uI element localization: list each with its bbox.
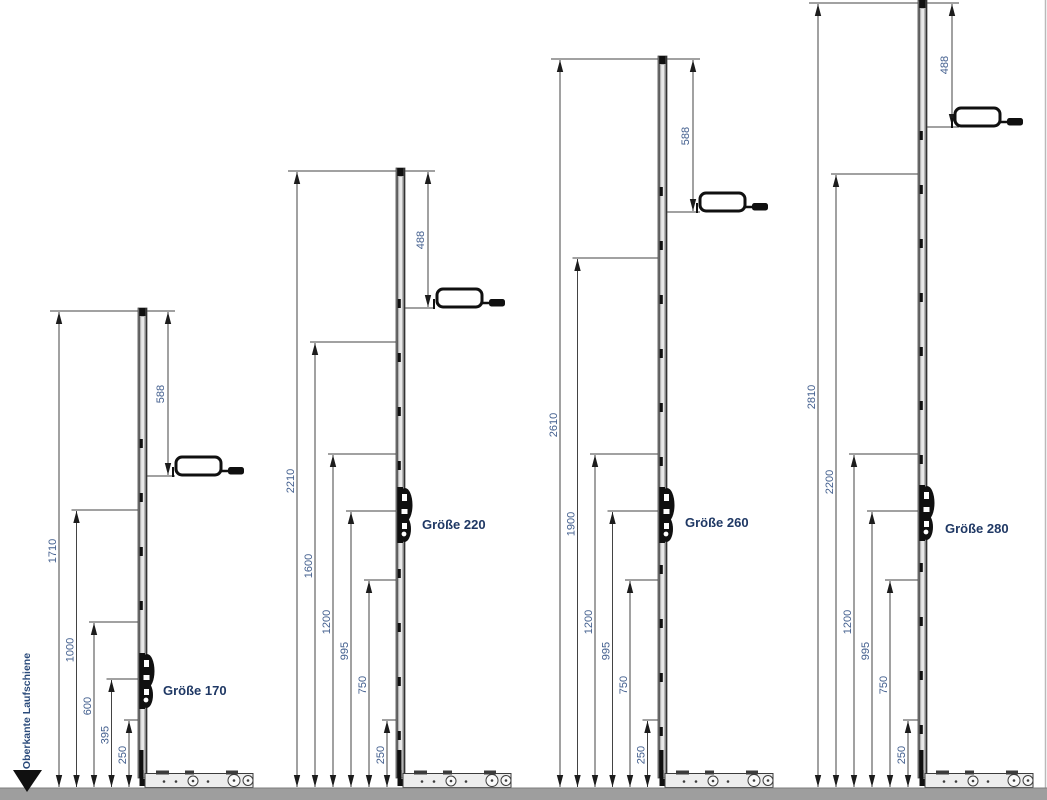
dimension-value: 250 <box>896 746 908 764</box>
dimension-value: 750 <box>878 676 890 694</box>
locking-point <box>398 677 401 686</box>
dimension-arrow <box>833 775 839 787</box>
carriage-axle-dot <box>767 779 770 782</box>
dimension-arrow <box>574 259 580 271</box>
lock-detail <box>924 507 930 512</box>
unit-3: 261019001200995750250588Größe 260 <box>548 56 773 788</box>
unit-label: Größe 280 <box>945 521 1009 536</box>
dimension-arrow <box>644 775 650 787</box>
locking-point <box>140 547 143 556</box>
dimension-arrow <box>165 463 171 475</box>
dimension-arrow <box>294 775 300 787</box>
locking-point <box>660 619 663 628</box>
locking-point <box>920 455 923 464</box>
dimension-value: 250 <box>636 746 648 764</box>
dimension-arrow <box>609 512 615 524</box>
dimension-value: 250 <box>375 746 387 764</box>
lock-detail <box>144 689 149 695</box>
door-handle <box>176 457 221 475</box>
dimension-arrow <box>91 775 97 787</box>
carriage-axle-dot <box>491 779 494 782</box>
dimension-arrow <box>348 512 354 524</box>
lock-detail <box>924 492 929 499</box>
carriage-axle-dot <box>465 780 468 783</box>
locking-point <box>398 569 401 578</box>
dimension-arrow <box>73 511 79 523</box>
door-handle <box>955 108 1000 126</box>
dimension-value: 395 <box>100 726 112 744</box>
carriage-detail <box>1006 771 1018 775</box>
carriage-axle-dot <box>233 779 236 782</box>
locking-point <box>920 563 923 572</box>
carriage-axle-dot <box>421 780 424 783</box>
dimension-arrow <box>851 455 857 467</box>
carriage-detail <box>443 771 452 775</box>
dimension-value: 1200 <box>842 610 854 634</box>
dimension-arrow <box>425 295 431 307</box>
dimension-arrow <box>312 343 318 355</box>
locking-point <box>398 623 401 632</box>
dimension-arrow <box>627 775 633 787</box>
carriage-axle-dot <box>247 779 250 782</box>
dimension-value: 588 <box>680 127 692 145</box>
dimension-value: 1200 <box>321 610 333 634</box>
rail-top-cap <box>398 168 404 176</box>
dimension-value: 2610 <box>548 413 560 437</box>
lock-detail <box>664 532 669 537</box>
locking-point <box>920 617 923 626</box>
unit-1: 17101000600395250588Größe 170 <box>47 308 253 788</box>
door-handle <box>700 193 745 211</box>
carriage-detail <box>746 771 758 775</box>
dimension-arrow <box>330 775 336 787</box>
dimension-arrow <box>815 4 821 16</box>
locking-point <box>920 671 923 680</box>
unit-label: Größe 260 <box>685 515 749 530</box>
locking-point <box>920 725 923 734</box>
dimension-arrow <box>887 581 893 593</box>
lock-detail <box>144 660 149 667</box>
dimension-value: 2210 <box>285 469 297 493</box>
dimension-arrow <box>905 775 911 787</box>
dimension-arrow <box>384 775 390 787</box>
handle-grip <box>752 203 768 211</box>
carriage-detail <box>185 771 194 775</box>
dimension-value: 1710 <box>47 539 59 563</box>
locking-point <box>140 601 143 610</box>
locking-point <box>920 185 923 194</box>
lock-detail <box>402 509 408 514</box>
dimension-value: 2810 <box>806 385 818 409</box>
dimension-arrow <box>330 455 336 467</box>
carriage-detail <box>705 771 714 775</box>
dimension-arrow <box>126 775 132 787</box>
dimension-arrow <box>627 581 633 593</box>
dimension-value: 250 <box>117 746 129 764</box>
rail-top-cap <box>140 308 146 316</box>
dimension-value: 2200 <box>824 470 836 494</box>
carriage-axle-dot <box>712 780 715 783</box>
lock-detail <box>664 494 669 501</box>
dimension-value: 600 <box>82 697 94 715</box>
dimension-arrow <box>609 775 615 787</box>
dimension-arrow <box>949 4 955 16</box>
dimension-arrow <box>165 312 171 324</box>
rail-top-cap <box>920 0 926 8</box>
locking-point <box>398 461 401 470</box>
locking-point <box>398 299 401 308</box>
dimension-arrow <box>815 775 821 787</box>
dimension-arrow <box>869 512 875 524</box>
dimension-value: 488 <box>415 231 427 249</box>
unit-4: 281022001200995750250488Größe 280 <box>806 0 1033 788</box>
dimension-arrow <box>557 60 563 72</box>
dimension-value: 995 <box>601 642 613 660</box>
locking-point <box>398 353 401 362</box>
carriage-axle-dot <box>955 780 958 783</box>
dimension-value: 995 <box>860 642 872 660</box>
carriage-axle-dot <box>727 780 730 783</box>
door-handle <box>437 289 482 307</box>
carriage-axle-dot <box>192 780 195 783</box>
dimension-arrow <box>592 455 598 467</box>
unit-label: Größe 220 <box>422 517 486 532</box>
carriage-detail <box>965 771 974 775</box>
dimension-arrow <box>294 172 300 184</box>
dimension-arrow <box>557 775 563 787</box>
carriage-detail <box>484 771 496 775</box>
dimension-arrow <box>366 581 372 593</box>
unit-label: Größe 170 <box>163 683 227 698</box>
carriage-detail <box>226 771 238 775</box>
lock-detail <box>924 530 929 535</box>
lock-detail <box>402 494 407 501</box>
locking-point <box>660 565 663 574</box>
dimension-value: 1600 <box>303 554 315 578</box>
dimension-arrow <box>869 775 875 787</box>
carriage-detail <box>414 771 427 775</box>
handle-grip <box>1007 118 1023 126</box>
dimension-value: 995 <box>339 642 351 660</box>
dimension-arrow <box>384 721 390 733</box>
baseline-bar <box>0 788 1047 800</box>
dimension-arrow <box>126 721 132 733</box>
locking-point <box>660 457 663 466</box>
dimension-value: 488 <box>939 56 951 74</box>
lock-detail <box>664 523 669 529</box>
locking-point <box>398 407 401 416</box>
lock-detail <box>144 698 149 703</box>
carriage-detail <box>676 771 689 775</box>
dimension-arrow <box>833 175 839 187</box>
carriage-axle-dot <box>695 780 698 783</box>
dimension-value: 750 <box>357 676 369 694</box>
dimension-arrow <box>592 775 598 787</box>
dimension-arrow <box>91 623 97 635</box>
carriage-axle-dot <box>753 779 756 782</box>
dimension-value: 1200 <box>583 610 595 634</box>
dimension-arrow <box>348 775 354 787</box>
handle-grip <box>489 299 505 307</box>
lock-detail <box>402 523 407 529</box>
lock-detail <box>144 675 150 680</box>
carriage-axle-dot <box>972 780 975 783</box>
dimension-arrow <box>690 199 696 211</box>
locking-point <box>660 295 663 304</box>
rail-inner-stripe <box>921 9 924 770</box>
carriage-axle-dot <box>207 780 210 783</box>
locking-point <box>660 241 663 250</box>
lock-detail <box>402 532 407 537</box>
dimension-arrow <box>73 775 79 787</box>
dimension-value: 1900 <box>566 512 578 536</box>
carriage-axle-dot <box>163 780 166 783</box>
locking-point <box>920 293 923 302</box>
dimension-arrow <box>425 172 431 184</box>
dimension-arrow <box>108 680 114 692</box>
dimension-arrow <box>851 775 857 787</box>
locking-point <box>920 131 923 140</box>
carriage-detail <box>936 771 949 775</box>
locking-point <box>140 493 143 502</box>
dimension-arrow <box>887 775 893 787</box>
dimension-value: 1000 <box>65 638 77 662</box>
carriage-axle-dot <box>505 779 508 782</box>
dimension-arrow <box>905 721 911 733</box>
datum-label: Oberkante Laufschiene <box>21 653 33 769</box>
drawing-page: 17101000600395250588Größe 17022101600120… <box>0 0 1047 800</box>
locking-point <box>140 439 143 448</box>
carriage-axle-dot <box>1013 779 1016 782</box>
rail-top-cap <box>660 56 666 64</box>
rail-inner-stripe <box>661 65 664 770</box>
dimension-arrow <box>644 721 650 733</box>
dimension-value: 588 <box>155 385 167 403</box>
carriage-axle-dot <box>943 780 946 783</box>
lock-detail <box>924 521 929 527</box>
locking-point <box>660 403 663 412</box>
handle-grip <box>228 467 244 475</box>
locking-point <box>660 187 663 196</box>
dimension-arrow <box>56 775 62 787</box>
locking-point <box>920 239 923 248</box>
dimension-value: 750 <box>618 676 630 694</box>
dimension-arrow <box>108 775 114 787</box>
locking-point <box>920 347 923 356</box>
locking-point <box>660 673 663 682</box>
dimension-arrow <box>366 775 372 787</box>
carriage-axle-dot <box>450 780 453 783</box>
dimension-arrow <box>312 775 318 787</box>
locking-point <box>398 731 401 740</box>
carriage-axle-dot <box>433 780 436 783</box>
dimension-arrow <box>574 775 580 787</box>
technical-drawing: 17101000600395250588Größe 17022101600120… <box>0 0 1047 800</box>
lock-detail <box>664 509 670 514</box>
carriage-detail <box>156 771 169 775</box>
locking-point <box>660 349 663 358</box>
unit-2: 221016001200995750250488Größe 220 <box>285 168 511 788</box>
carriage-axle-dot <box>1027 779 1030 782</box>
carriage-axle-dot <box>175 780 178 783</box>
locking-point <box>920 401 923 410</box>
locking-point <box>660 727 663 736</box>
dimension-arrow <box>690 60 696 72</box>
dimension-arrow <box>56 312 62 324</box>
carriage-axle-dot <box>683 780 686 783</box>
carriage-axle-dot <box>987 780 990 783</box>
